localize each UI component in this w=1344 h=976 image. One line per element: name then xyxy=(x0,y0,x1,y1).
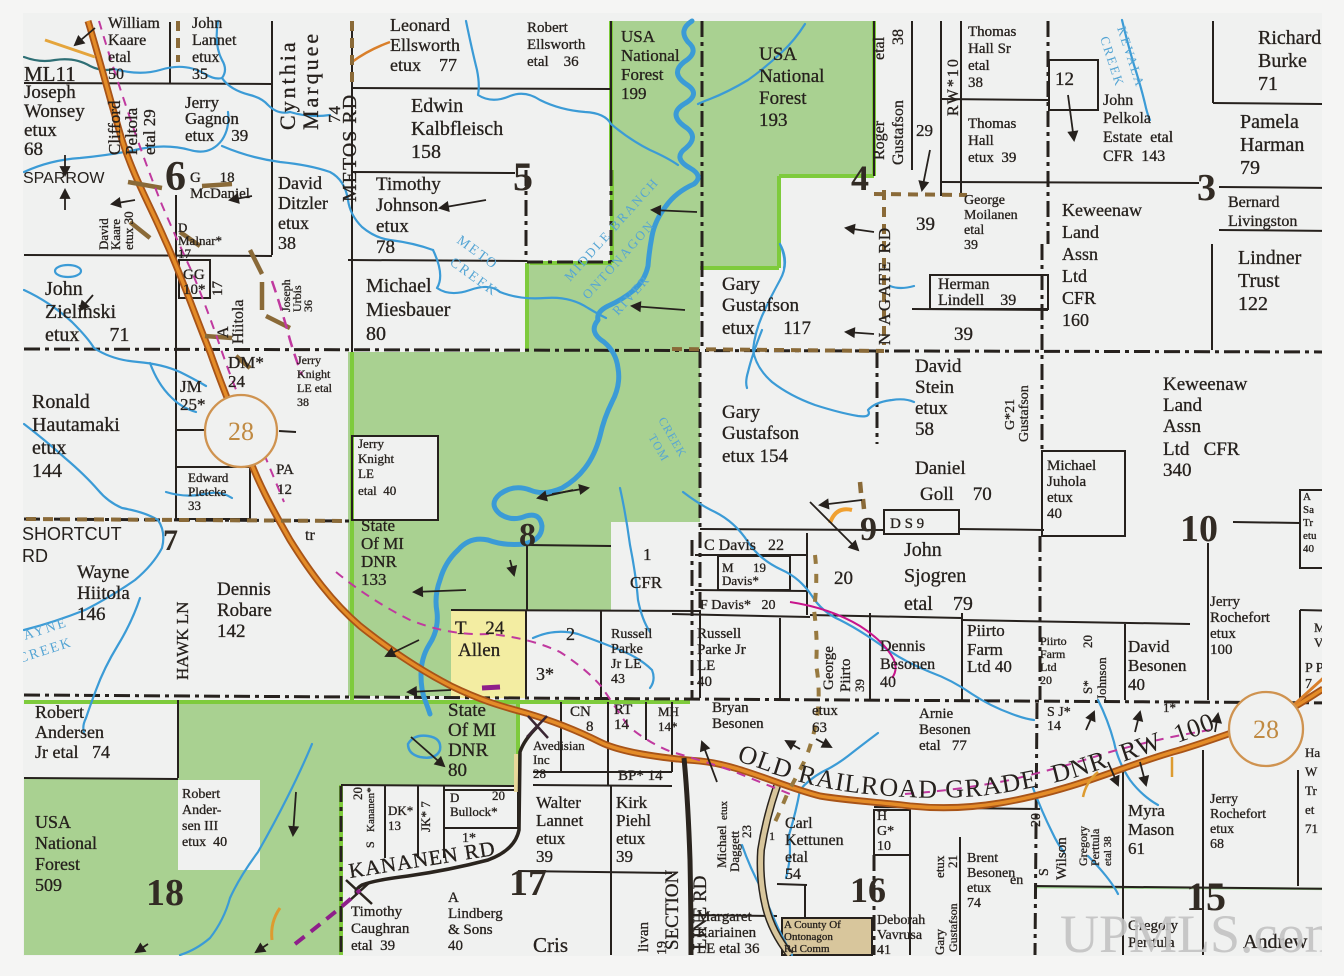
svg-text:Goll 70: Goll 70 xyxy=(920,484,992,505)
svg-text:Forest: Forest xyxy=(35,854,80,874)
svg-text:Gary: Gary xyxy=(932,929,947,955)
svg-text:100: 100 xyxy=(1210,642,1233,658)
svg-text:28: 28 xyxy=(533,766,546,781)
svg-text:D: D xyxy=(450,790,459,805)
svg-text:Forest: Forest xyxy=(759,88,807,109)
svg-text:etux 77: etux 77 xyxy=(390,55,457,75)
svg-text:Parke: Parke xyxy=(611,642,643,657)
svg-text:G 18: G 18 xyxy=(190,170,235,186)
svg-text:etux: etux xyxy=(278,213,309,233)
svg-text:DK*: DK* xyxy=(388,803,413,818)
svg-text:P P: P P xyxy=(1305,661,1324,676)
svg-text:DNR: DNR xyxy=(361,552,398,571)
svg-text:58: 58 xyxy=(915,419,934,440)
svg-text:George: George xyxy=(964,193,1005,208)
svg-text:Piirto: Piirto xyxy=(1040,634,1067,648)
svg-text:State: State xyxy=(361,516,395,535)
svg-text:Johnson: Johnson xyxy=(1094,657,1109,700)
svg-text:Hautamaki: Hautamaki xyxy=(32,414,120,436)
svg-text:Stein: Stein xyxy=(915,377,955,398)
svg-text:158: 158 xyxy=(411,141,441,163)
svg-text:Timothy: Timothy xyxy=(351,904,403,920)
svg-text:en: en xyxy=(1010,873,1023,888)
svg-text:Hall Sr: Hall Sr xyxy=(968,41,1011,57)
svg-text:T 24: T 24 xyxy=(455,618,505,639)
svg-text:Russell: Russell xyxy=(697,626,741,642)
svg-text:etux 154: etux 154 xyxy=(722,446,788,467)
svg-text:S: S xyxy=(363,841,377,848)
svg-text:71: 71 xyxy=(1258,73,1278,95)
svg-text:etux: etux xyxy=(812,703,838,719)
svg-text:Gustafson: Gustafson xyxy=(722,295,800,316)
svg-text:18: 18 xyxy=(146,872,184,914)
svg-text:JK* 7: JK* 7 xyxy=(418,801,433,832)
svg-text:Margaret: Margaret xyxy=(697,909,753,925)
svg-text:etux 40: etux 40 xyxy=(182,835,227,850)
svg-text:5: 5 xyxy=(513,154,533,199)
svg-text:Gary: Gary xyxy=(722,402,760,423)
svg-text:Allen: Allen xyxy=(458,640,501,661)
svg-text:12: 12 xyxy=(1055,69,1074,90)
svg-text:etal 79: etal 79 xyxy=(904,593,973,615)
svg-text:Pelkola: Pelkola xyxy=(1103,110,1151,127)
svg-text:etux: etux xyxy=(915,398,948,419)
svg-text:144: 144 xyxy=(32,460,62,482)
svg-text:17: 17 xyxy=(509,862,547,904)
svg-text:74: 74 xyxy=(967,896,981,911)
svg-text:39: 39 xyxy=(954,324,973,345)
svg-text:Estate etal: Estate etal xyxy=(1103,129,1174,146)
svg-text:G*21: G*21 xyxy=(1003,399,1018,430)
svg-text:USA: USA xyxy=(759,44,797,65)
svg-text:Ellsworth: Ellsworth xyxy=(527,37,586,53)
svg-text:D S 9: D S 9 xyxy=(890,516,924,532)
svg-text:Juhola: Juhola xyxy=(1047,474,1087,490)
svg-text:Kariainen: Kariainen xyxy=(697,925,757,941)
svg-text:etux: etux xyxy=(192,49,220,66)
svg-text:Knight: Knight xyxy=(358,451,395,466)
svg-text:etal 38: etal 38 xyxy=(1102,836,1114,866)
svg-text:2: 2 xyxy=(566,624,575,644)
svg-text:CFR 143: CFR 143 xyxy=(1103,148,1165,165)
svg-text:Lannet: Lannet xyxy=(536,811,583,830)
svg-text:Sa: Sa xyxy=(1303,504,1314,516)
svg-text:GG: GG xyxy=(183,267,205,283)
svg-text:40: 40 xyxy=(1128,675,1145,694)
svg-text:8: 8 xyxy=(586,719,594,735)
svg-text:Land: Land xyxy=(1062,222,1099,242)
svg-text:Bryan: Bryan xyxy=(712,700,749,716)
svg-text:Lindell 39: Lindell 39 xyxy=(938,292,1016,309)
svg-text:Besonen: Besonen xyxy=(967,866,1015,881)
svg-text:4: 4 xyxy=(851,158,869,198)
svg-text:Rochefort: Rochefort xyxy=(1210,610,1271,626)
svg-text:23: 23 xyxy=(739,825,754,838)
svg-text:Wonsey: Wonsey xyxy=(24,101,85,122)
svg-text:Of MI: Of MI xyxy=(448,720,496,741)
svg-text:Kettunen: Kettunen xyxy=(785,832,844,849)
svg-text:Livingston: Livingston xyxy=(1228,213,1297,230)
svg-text:68: 68 xyxy=(1210,837,1224,852)
svg-text:Hall: Hall xyxy=(968,133,994,149)
svg-text:S J*: S J* xyxy=(1047,705,1071,720)
svg-text:Keweenaw: Keweenaw xyxy=(1163,374,1248,395)
svg-text:Tr: Tr xyxy=(1305,783,1317,798)
svg-text:& Sons: & Sons xyxy=(448,922,493,938)
svg-text:509: 509 xyxy=(35,875,62,895)
svg-text:Mason: Mason xyxy=(1128,820,1175,839)
svg-text:24: 24 xyxy=(228,372,246,391)
svg-text:LE etal 36: LE etal 36 xyxy=(697,941,760,957)
svg-text:Carl: Carl xyxy=(785,815,813,832)
svg-text:40: 40 xyxy=(448,938,463,954)
svg-text:John: John xyxy=(1103,92,1133,109)
svg-text:F Davis* 20: F Davis* 20 xyxy=(700,598,775,613)
svg-text:Hiitola: Hiitola xyxy=(230,300,247,344)
svg-text:etux: etux xyxy=(967,881,991,896)
svg-text:Pamela: Pamela xyxy=(1240,111,1299,133)
svg-text:CN: CN xyxy=(570,704,591,720)
svg-text:Knight: Knight xyxy=(297,367,331,381)
svg-text:S: S xyxy=(1037,868,1052,876)
svg-text:Besonen: Besonen xyxy=(919,722,971,738)
svg-text:LE: LE xyxy=(358,466,374,481)
svg-text:Ltd: Ltd xyxy=(1062,266,1087,286)
svg-text:78: 78 xyxy=(376,237,395,258)
svg-text:McDaniel: McDaniel xyxy=(190,186,250,202)
svg-text:Ronald: Ronald xyxy=(32,391,90,413)
svg-text:CFR: CFR xyxy=(1062,288,1096,308)
svg-text:Kaare: Kaare xyxy=(108,32,146,49)
svg-text:Burke: Burke xyxy=(1258,50,1307,72)
svg-text:tr: tr xyxy=(305,527,315,544)
svg-text:Inc: Inc xyxy=(533,752,550,767)
svg-text:etux: etux xyxy=(1047,490,1073,506)
svg-text:Jerry: Jerry xyxy=(297,353,321,367)
svg-text:W: W xyxy=(1305,764,1318,779)
svg-text:Kirk: Kirk xyxy=(616,793,648,812)
svg-text:Sjogren: Sjogren xyxy=(904,565,966,587)
svg-text:Edward: Edward xyxy=(188,470,229,485)
svg-text:Forest: Forest xyxy=(621,65,664,84)
svg-text:etal: etal xyxy=(871,36,888,60)
svg-text:3*: 3* xyxy=(536,664,554,684)
svg-text:Ltd 40: Ltd 40 xyxy=(967,657,1012,676)
svg-text:Edwin: Edwin xyxy=(411,95,463,117)
svg-text:40: 40 xyxy=(1047,506,1062,522)
svg-text:38: 38 xyxy=(968,75,983,91)
svg-text:etal 36: etal 36 xyxy=(527,54,579,70)
svg-text:etux 39: etux 39 xyxy=(968,150,1016,166)
svg-text:Vavrusa: Vavrusa xyxy=(877,928,923,943)
svg-text:16: 16 xyxy=(850,870,886,910)
svg-text:Ditzler: Ditzler xyxy=(278,193,328,213)
svg-text:Parke Jr: Parke Jr xyxy=(697,642,746,658)
svg-text:Robare: Robare xyxy=(217,600,272,621)
svg-text:80: 80 xyxy=(448,760,467,781)
svg-text:Keweenaw: Keweenaw xyxy=(1062,200,1142,220)
svg-text:Piirto: Piirto xyxy=(967,621,1005,640)
svg-text:Assn: Assn xyxy=(1163,416,1202,437)
svg-text:Rd Comm: Rd Comm xyxy=(784,943,830,955)
svg-text:David: David xyxy=(915,356,962,377)
svg-text:etux 39: etux 39 xyxy=(185,126,248,145)
svg-text:Kananen*: Kananen* xyxy=(365,787,377,832)
svg-text:Besonen: Besonen xyxy=(880,656,935,673)
svg-text:etal: etal xyxy=(785,849,809,866)
svg-text:28: 28 xyxy=(228,417,254,446)
svg-text:Arnie: Arnie xyxy=(919,706,953,722)
svg-text:etux 117: etux 117 xyxy=(722,318,811,339)
svg-text:10: 10 xyxy=(877,839,891,854)
svg-text:Ltd CFR: Ltd CFR xyxy=(1163,439,1240,460)
svg-text:LE: LE xyxy=(697,658,715,674)
svg-text:Davis*: Davis* xyxy=(722,573,759,588)
svg-text:40: 40 xyxy=(697,674,712,690)
svg-text:Caughran: Caughran xyxy=(351,921,410,937)
svg-text:JM: JM xyxy=(180,377,202,396)
svg-text:Andersen: Andersen xyxy=(35,722,104,742)
svg-text:20: 20 xyxy=(1040,673,1052,687)
svg-text:10: 10 xyxy=(1180,508,1218,550)
svg-text:etux: etux xyxy=(1210,626,1236,642)
svg-text:Avedisian: Avedisian xyxy=(533,738,585,753)
svg-text:etal 29: etal 29 xyxy=(140,109,159,155)
svg-text:etux: etux xyxy=(536,829,566,848)
svg-text:Michael: Michael xyxy=(1047,458,1096,474)
svg-text:Tr: Tr xyxy=(1303,517,1313,529)
svg-text:Besonen: Besonen xyxy=(712,716,764,732)
svg-text:Gustafson: Gustafson xyxy=(722,423,800,444)
svg-text:DNR: DNR xyxy=(448,740,488,761)
svg-text:etal: etal xyxy=(964,223,984,238)
svg-text:Piehl: Piehl xyxy=(616,811,651,830)
svg-text:Cris: Cris xyxy=(533,933,568,957)
svg-text:14*: 14* xyxy=(658,719,678,734)
svg-text:Farm: Farm xyxy=(1040,647,1066,661)
svg-text:A County Of: A County Of xyxy=(784,919,841,931)
svg-text:36: 36 xyxy=(301,300,315,312)
svg-text:Trust: Trust xyxy=(1238,270,1280,292)
svg-text:Ellsworth: Ellsworth xyxy=(390,35,460,55)
svg-text:17: 17 xyxy=(178,246,192,261)
svg-text:Thomas: Thomas xyxy=(968,116,1016,132)
svg-text:20: 20 xyxy=(1029,813,1044,827)
svg-text:SPARROW: SPARROW xyxy=(23,170,105,187)
svg-text:Rochefort: Rochefort xyxy=(1210,807,1266,822)
svg-text:9: 9 xyxy=(860,511,877,548)
svg-text:National: National xyxy=(621,46,680,65)
svg-text:David: David xyxy=(1128,637,1170,656)
svg-text:Walter: Walter xyxy=(536,793,581,812)
svg-text:Herman: Herman xyxy=(938,276,990,293)
svg-text:David: David xyxy=(278,173,322,193)
svg-text:William: William xyxy=(108,15,160,32)
svg-text:10*: 10* xyxy=(183,282,206,298)
svg-text:Harman: Harman xyxy=(1240,134,1304,156)
svg-text:39: 39 xyxy=(964,238,978,253)
svg-text:John: John xyxy=(192,15,222,32)
svg-text:Kalbfleisch: Kalbfleisch xyxy=(411,118,503,140)
svg-text:Bernard: Bernard xyxy=(1228,194,1280,211)
svg-text:54: 54 xyxy=(785,866,801,883)
svg-text:8: 8 xyxy=(519,517,536,554)
svg-text:38: 38 xyxy=(890,29,907,45)
svg-text:20: 20 xyxy=(350,787,365,800)
svg-text:N AGATE RD: N AGATE RD xyxy=(875,226,894,345)
svg-text:39: 39 xyxy=(616,847,633,866)
svg-text:25*: 25* xyxy=(180,395,206,414)
svg-text:63: 63 xyxy=(812,720,827,736)
svg-text:12: 12 xyxy=(277,482,292,498)
svg-text:Wayne: Wayne xyxy=(77,562,129,583)
svg-text:Gustafson: Gustafson xyxy=(946,903,960,952)
svg-text:71: 71 xyxy=(1305,821,1318,836)
svg-text:19: 19 xyxy=(655,941,670,955)
svg-text:38: 38 xyxy=(297,395,309,409)
svg-text:20: 20 xyxy=(492,788,505,803)
svg-text:Deborah: Deborah xyxy=(877,913,925,928)
svg-text:etal 40: etal 40 xyxy=(358,483,396,498)
svg-text:80: 80 xyxy=(366,323,386,345)
svg-text:CFR: CFR xyxy=(630,573,663,592)
svg-text:Robert: Robert xyxy=(182,787,220,802)
svg-text:Daniel: Daniel xyxy=(915,458,966,479)
svg-text:S*: S* xyxy=(1080,680,1095,694)
svg-text:Dennis: Dennis xyxy=(217,579,271,600)
svg-text:Gustafson: Gustafson xyxy=(1017,385,1032,442)
svg-text:41: 41 xyxy=(877,943,891,958)
svg-text:133: 133 xyxy=(361,570,387,589)
svg-text:1: 1 xyxy=(643,545,652,564)
svg-text:Ander-: Ander- xyxy=(182,803,222,818)
svg-text:Johnson: Johnson xyxy=(376,195,439,216)
svg-text:USA: USA xyxy=(621,27,656,46)
svg-text:C Davis 22: C Davis 22 xyxy=(704,537,784,554)
svg-text:etux: etux xyxy=(616,829,646,848)
svg-text:Thomas: Thomas xyxy=(968,24,1016,40)
svg-text:Michael: Michael xyxy=(366,275,432,297)
svg-text:122: 122 xyxy=(1238,293,1268,315)
svg-text:68: 68 xyxy=(24,139,43,160)
svg-text:14: 14 xyxy=(614,717,630,733)
svg-text:RW*10: RW*10 xyxy=(945,57,962,116)
svg-text:Bullock*: Bullock* xyxy=(450,804,498,819)
svg-text:3: 3 xyxy=(1197,167,1216,209)
svg-text:Besonen: Besonen xyxy=(1128,656,1187,675)
svg-text:RD: RD xyxy=(22,546,48,566)
svg-text:etux: etux xyxy=(718,801,730,820)
svg-text:A: A xyxy=(448,890,459,906)
svg-text:17: 17 xyxy=(210,281,226,297)
svg-text:H: H xyxy=(877,809,887,824)
svg-text:193: 193 xyxy=(759,110,788,131)
svg-text:BP* 14: BP* 14 xyxy=(618,768,663,784)
svg-text:28: 28 xyxy=(1253,715,1279,744)
svg-text:7: 7 xyxy=(163,524,178,557)
svg-text:43: 43 xyxy=(611,672,625,687)
svg-text:etu: etu xyxy=(1303,530,1317,542)
svg-text:14: 14 xyxy=(1047,719,1061,734)
svg-text:etux: etux xyxy=(1210,822,1234,837)
svg-text:Gustafson: Gustafson xyxy=(890,100,907,165)
svg-text:George: George xyxy=(821,646,837,690)
svg-text:13: 13 xyxy=(388,818,401,833)
svg-text:Jr LE: Jr LE xyxy=(611,657,642,672)
svg-text:1*: 1* xyxy=(1163,700,1176,715)
svg-text:Leonard: Leonard xyxy=(390,15,450,35)
svg-text:A: A xyxy=(1303,491,1311,503)
svg-text:Moilanen: Moilanen xyxy=(964,208,1018,223)
svg-text:SECTION: SECTION xyxy=(662,870,683,951)
svg-text:21: 21 xyxy=(945,855,960,868)
svg-text:79: 79 xyxy=(1240,157,1260,179)
svg-text:Pletcke: Pletcke xyxy=(188,484,226,499)
svg-text:Brent: Brent xyxy=(967,851,998,866)
svg-text:USA: USA xyxy=(35,812,71,832)
svg-text:Gary: Gary xyxy=(722,274,760,295)
svg-text:etal: etal xyxy=(968,58,990,74)
svg-text:John: John xyxy=(45,278,83,300)
svg-text:Dennis: Dennis xyxy=(880,638,925,655)
svg-text:Jr etal 74: Jr etal 74 xyxy=(35,742,110,762)
svg-text:20: 20 xyxy=(1080,635,1095,648)
svg-text:Lindberg: Lindberg xyxy=(448,906,503,922)
svg-text:Myra: Myra xyxy=(1128,801,1165,820)
svg-text:State: State xyxy=(448,700,486,721)
svg-text:35: 35 xyxy=(192,66,208,83)
svg-text:MH: MH xyxy=(658,704,679,719)
svg-text:METOS RD: METOS RD xyxy=(339,94,361,202)
svg-text:142: 142 xyxy=(217,621,246,642)
svg-text:61: 61 xyxy=(1128,839,1145,858)
svg-text:National: National xyxy=(35,833,97,853)
svg-text:Ontonagon: Ontonagon xyxy=(784,931,833,943)
svg-text:Jerry: Jerry xyxy=(1210,594,1240,610)
svg-text:etal 77: etal 77 xyxy=(919,738,967,754)
svg-text:Wilson: Wilson xyxy=(1054,837,1070,880)
svg-text:etal: etal xyxy=(108,49,132,66)
svg-text:1: 1 xyxy=(769,829,775,843)
svg-text:Ltd: Ltd xyxy=(1040,660,1057,674)
svg-text:DM*: DM* xyxy=(228,353,264,372)
svg-text:etux 71: etux 71 xyxy=(45,324,129,346)
svg-text:Of MI: Of MI xyxy=(361,534,404,553)
svg-text:Jerry: Jerry xyxy=(358,436,384,451)
svg-text:40: 40 xyxy=(880,674,896,691)
svg-text:John: John xyxy=(904,539,942,561)
svg-text:39: 39 xyxy=(852,679,867,692)
svg-text:Peltola: Peltola xyxy=(122,107,141,155)
svg-text:Miesbauer: Miesbauer xyxy=(366,299,451,321)
svg-text:Land: Land xyxy=(1163,395,1203,416)
svg-text:etux: etux xyxy=(32,437,66,459)
svg-text:199: 199 xyxy=(621,84,647,103)
svg-text:7: 7 xyxy=(1305,677,1312,692)
svg-text:Assn: Assn xyxy=(1062,244,1098,264)
svg-text:et: et xyxy=(1305,802,1315,817)
svg-text:sen III: sen III xyxy=(182,819,218,834)
svg-text:G*: G* xyxy=(877,824,894,839)
svg-text:Roger: Roger xyxy=(871,120,888,160)
svg-text:29: 29 xyxy=(916,121,933,140)
svg-text:38: 38 xyxy=(278,233,296,253)
svg-text:etux: etux xyxy=(24,120,57,141)
svg-text:Ha: Ha xyxy=(1305,745,1320,760)
svg-text:National: National xyxy=(759,66,824,87)
svg-text:HAWK LN: HAWK LN xyxy=(173,602,192,680)
svg-text:Timothy: Timothy xyxy=(376,174,441,195)
